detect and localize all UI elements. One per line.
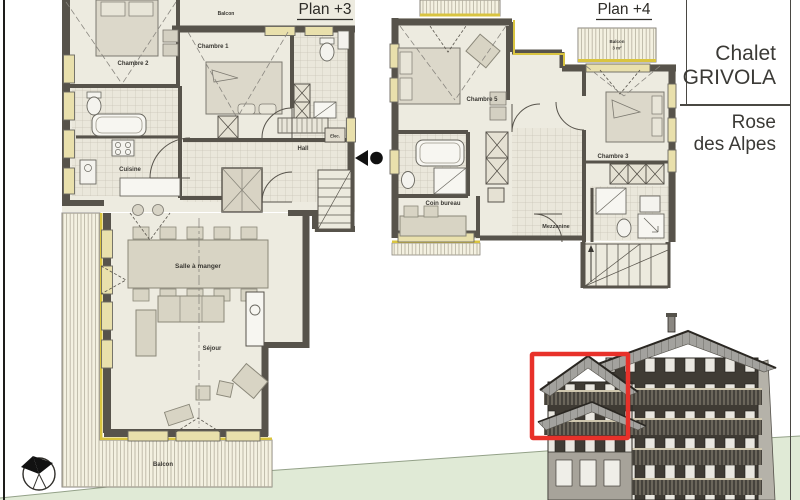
plan3-label-hall: Hall [297, 146, 308, 152]
titleblock-right-border [790, 0, 791, 500]
plans-graphic: Chambre 2 Chambre 1 Cuisine Hall Elec. B… [0, 0, 800, 500]
floor-plan-plan3: Chambre 2 Chambre 1 Cuisine Hall Elec. B… [62, 0, 356, 487]
plan4-balcony-bottom [392, 241, 480, 256]
plan3-label-sejour: Séjour [203, 346, 222, 352]
sheet-left-border [3, 0, 5, 500]
plan3-label-cuisine: Cuisine [119, 167, 141, 173]
entrance-marker-icon [355, 150, 383, 166]
residence-name-line1: Rose [732, 112, 776, 134]
floor-plan-plan4: Chambre 5 Chambre 3 Coin bureau Mezzanin… [390, 0, 676, 288]
plan3-label-balcon-top: Balcon [218, 11, 235, 17]
plan4-label-chambre3: Chambre 3 [597, 154, 629, 160]
drawing-sheet: Chambre 2 Chambre 1 Cuisine Hall Elec. B… [0, 0, 800, 500]
building-elevation [532, 313, 776, 500]
plan4-title: Plan +4 [597, 1, 650, 18]
title-block: Chalet GRIVOLA Rose des Alpes [686, 0, 790, 180]
plan3-title: Plan +3 [298, 1, 351, 18]
plan3-label-chambre1: Chambre 1 [197, 44, 229, 50]
plan3-label-balcon: Balcon [153, 462, 173, 468]
chalet-name-line1: Chalet [715, 42, 776, 65]
plan3-label-elec: Elec. [330, 134, 340, 139]
plan3-label-chambre2: Chambre 2 [117, 61, 149, 67]
plan4-label-coin-bureau: Coin bureau [425, 201, 460, 207]
plan4-label-balcon-area: 3 m² [612, 46, 622, 51]
chalet-name-line2: GRIVOLA [683, 66, 776, 89]
plan4-label-mezzanine: Mezzanine [542, 224, 570, 230]
plan3-label-salle-a-manger: Salle à manger [175, 263, 221, 270]
residence-name-line2: des Alpes [694, 134, 776, 156]
plan4-label-balcon: Balcon [609, 39, 624, 44]
plan4-balcony-top [420, 0, 500, 17]
north-compass-icon [21, 456, 55, 490]
plan4-label-chambre5: Chambre 5 [466, 97, 498, 103]
